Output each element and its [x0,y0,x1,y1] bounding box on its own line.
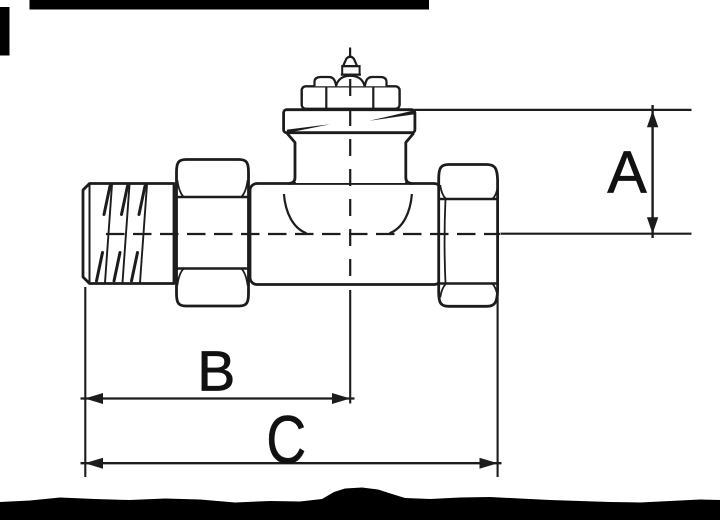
svg-text:C: C [266,402,306,478]
svg-text:A: A [607,139,647,205]
svg-text:B: B [197,339,235,403]
